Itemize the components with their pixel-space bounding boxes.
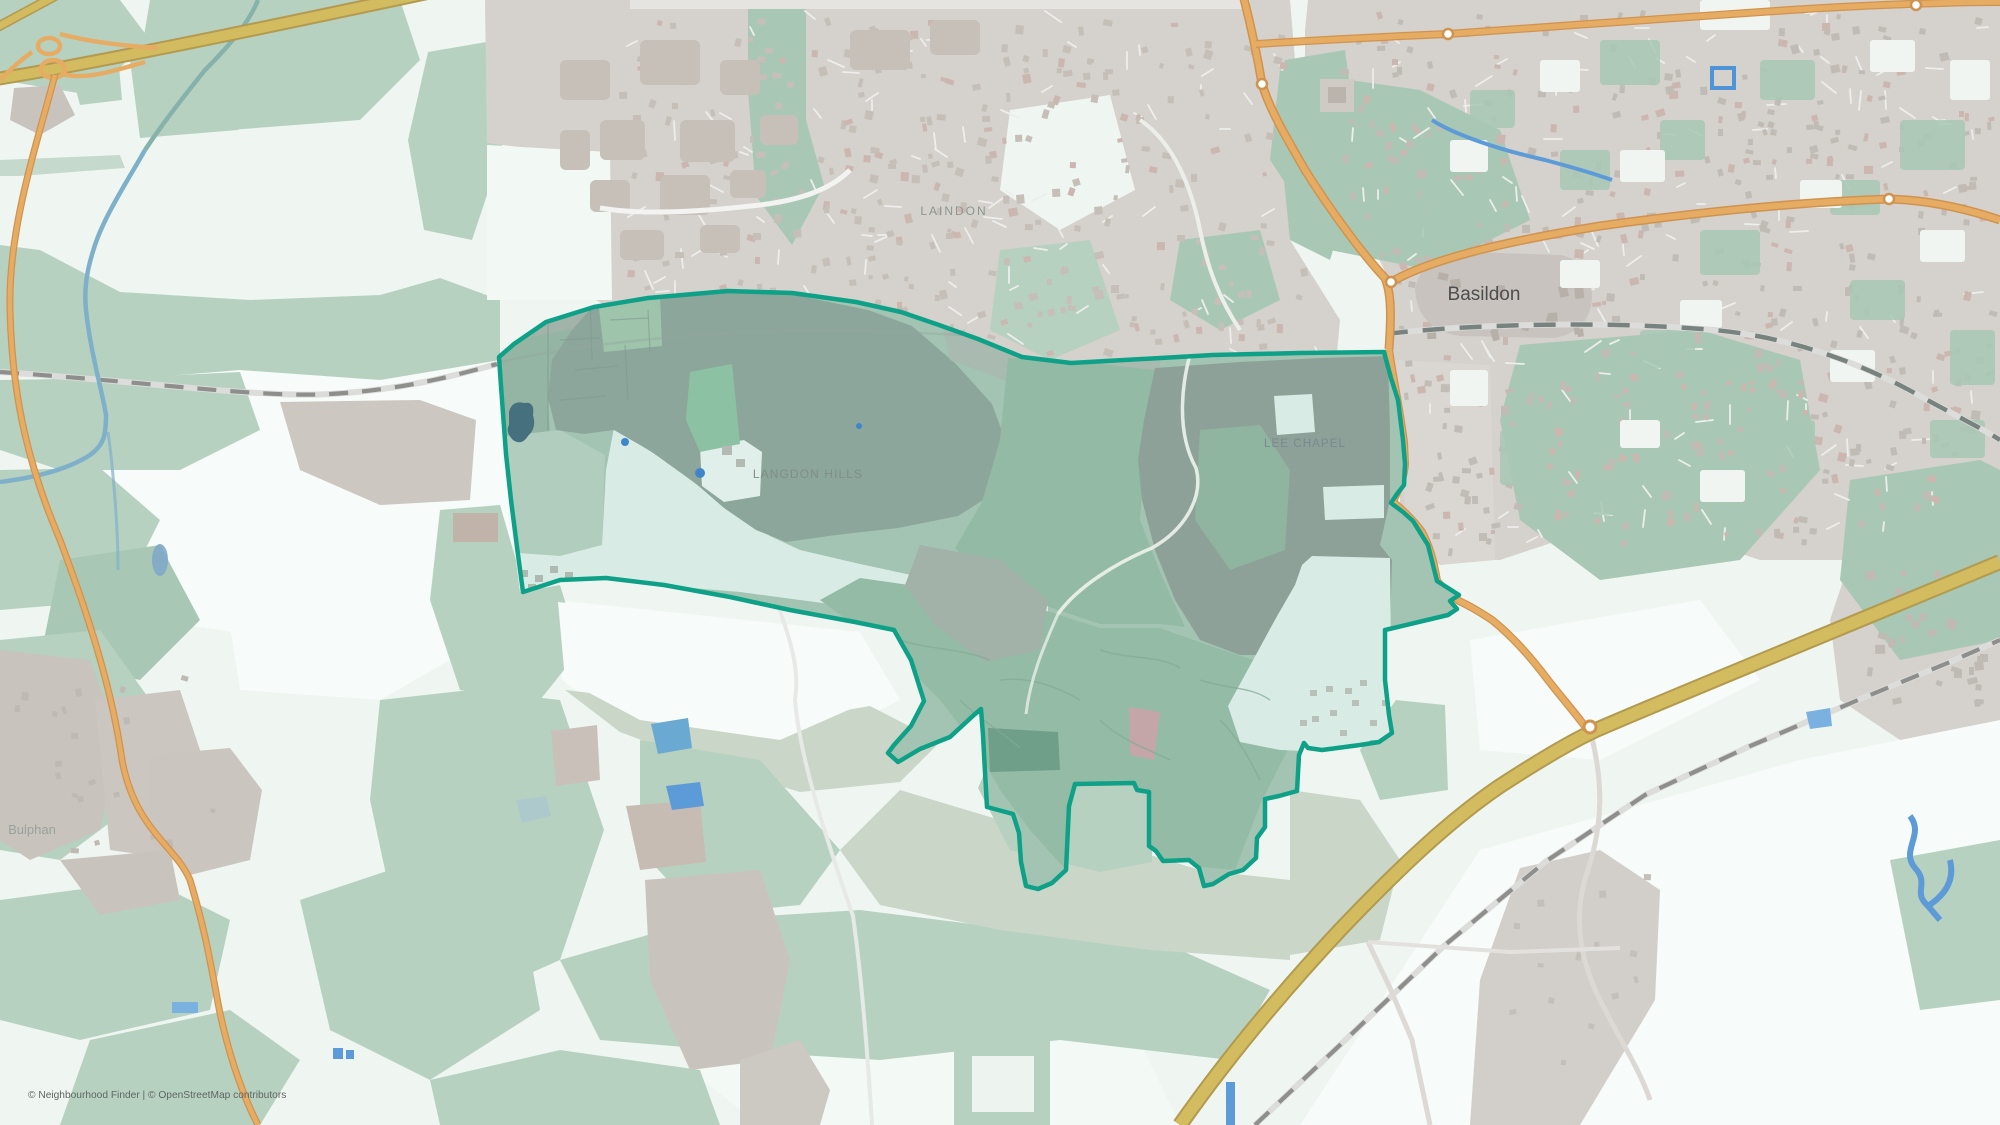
svg-text:Basildon: Basildon (1448, 284, 1521, 305)
svg-text:LEE CHAPEL: LEE CHAPEL (1264, 438, 1346, 450)
svg-text:LAINDON: LAINDON (920, 204, 987, 218)
svg-text:© Neighbourhood Finder | © Ope: © Neighbourhood Finder | © OpenStreetMap… (28, 1090, 286, 1101)
svg-text:Bulphan: Bulphan (8, 822, 56, 837)
svg-text:LANGDON HILLS: LANGDON HILLS (753, 467, 863, 481)
